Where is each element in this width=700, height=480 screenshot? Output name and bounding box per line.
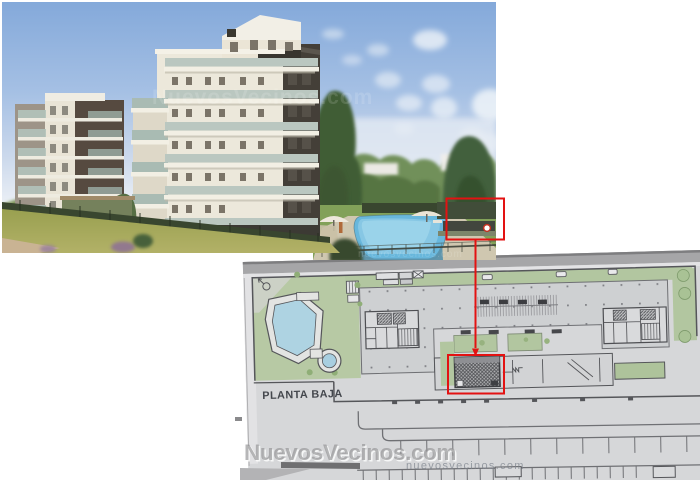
svg-text:NuevosVecinos.com: NuevosVecinos.com (152, 86, 373, 109)
svg-text:nuevosvecinos.com: nuevosvecinos.com (358, 249, 463, 260)
svg-text:nuevosvecinos.com: nuevosvecinos.com (406, 460, 525, 472)
svg-text:PLANTA BAJA: PLANTA BAJA (262, 388, 343, 402)
